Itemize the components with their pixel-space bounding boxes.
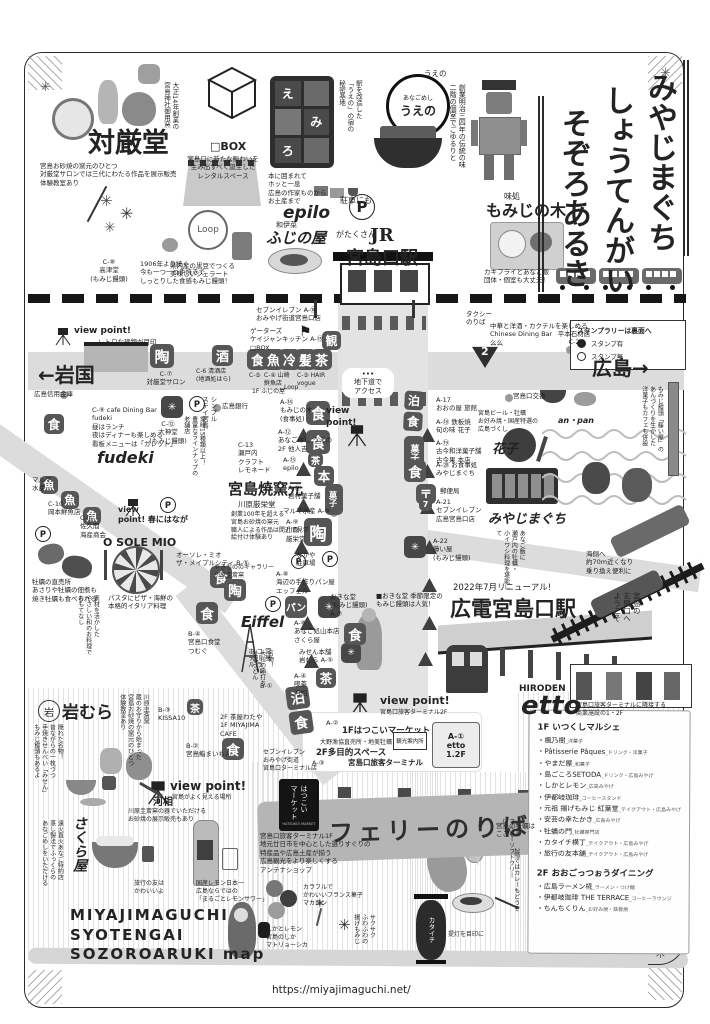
etto-brand: etto (521, 690, 581, 724)
okinado-poi-label: おきな堂 (もみじ饅頭) A-⑦ (330, 593, 368, 618)
sakuraya-cup (142, 846, 154, 862)
box-cube-icon (203, 64, 261, 122)
maple-leaf-2-icon: ✳ (120, 204, 133, 223)
viewpoint-terminal-caption: 宮島口旅客ターミナル2F (380, 709, 447, 717)
robot-body (479, 117, 521, 155)
box-label: □BOX (210, 140, 246, 154)
ryokou-caption: 旅行の友は かわいいよ (134, 880, 164, 896)
okinado-note: ■おきな堂 季節限定の もみじ饅頭は人気！ (376, 592, 443, 609)
etto-shop-item: ・旅行の友本舗_テイクアウト・広島みやげ (537, 849, 681, 861)
osole-caption: パスタにピザ・海鮮の 本格的イタリア料理 (108, 594, 173, 611)
ueno-vert: 創業明治三四年の伝統の味 二階の個室でごゆるりと (448, 84, 466, 204)
kan-icon: 観 (322, 331, 341, 350)
corner-hatch-bl (28, 970, 62, 1004)
koban-dot (505, 394, 513, 402)
hanako-caption: 宮島ビール・牡蠣 お好み焼・国産特選の 広島づくし (478, 410, 538, 433)
etto-shop-item: ・ちんちくりん_お好み焼・鉄板焼 (537, 904, 681, 916)
title-rule-right1 (683, 60, 685, 256)
kawaai-caption: 川原圭斎窯の器でいただける お砂焼の展示販売もあり (128, 808, 206, 824)
viewpoint-retro-tripod-icon (54, 326, 72, 346)
marma-p: P (35, 526, 51, 542)
chinese-bar-label: 中華と洋酒・カクテルを楽しめる Chinese Dining Bar 么么 (490, 322, 588, 347)
etto-shop-item: ・やまだ屋_和菓子 (537, 758, 681, 770)
parking-caption1: 駐車にも (340, 196, 372, 206)
tree-illustration-1 (582, 462, 610, 494)
nakaya-p: P (322, 551, 338, 567)
miyajimaguchi-script: みやじまぐち (488, 512, 566, 529)
marma-a10-label: マルマ水産 A-⑩ (283, 507, 330, 515)
hatsukoi-sign-text: はつこい マーケット (289, 785, 309, 820)
marma-label: マルマ 水産 (32, 476, 52, 493)
loop-logo: Loop (188, 210, 228, 250)
food-icon-a6: 食 (344, 623, 366, 645)
etto-1f-list: ・楓乃樹_洋菓子・Pâtisserie Pâques_ドリンク・洋菓子・やまだ屋… (537, 736, 682, 861)
iwamura-stamp: 岩 (38, 700, 60, 722)
sakuraya-rice (96, 836, 134, 846)
epilo-poi-label: A-⑬ epilo (283, 456, 299, 473)
sake-icon: 酒 (212, 345, 233, 366)
gallery-label: やきもののギャラリー 川原圭斎窯 (214, 564, 274, 580)
lantern-cap-bottom (416, 960, 446, 964)
ueno-logo-sub: あなごめし (403, 93, 433, 102)
site-url: https://miyajimaguchi.net/ (272, 984, 411, 998)
main-title-2: しょうてんがい (597, 85, 636, 295)
iwamura-cup-illustration (102, 776, 116, 790)
hiroden-train-windows (452, 652, 464, 666)
eiffel-poi-label: A-⑧ 海辺の手作りパン屋 エッフェル (276, 570, 335, 595)
momijinoki-dish2 (530, 232, 552, 252)
fudeki-script: fudeki (97, 448, 154, 469)
etto-shop-item: ・牡蠣の門_牡蠣専門店 (537, 826, 681, 838)
etto-shop-item: ・安芸の幸たかき_広島みやげ (537, 815, 681, 827)
cafe-icon-b3: 茶 (187, 699, 203, 715)
gelato-bag-illustration (232, 232, 252, 260)
emiro-tile-ro: ろ (275, 138, 301, 163)
food-icon-b4: 食 (196, 602, 218, 624)
food-icon-a20: 食 (404, 460, 426, 482)
macaron-illustration (266, 880, 283, 897)
hatsukoi-sign-sub: HATSUKOI MARKET (282, 822, 315, 826)
fujinoya-1f-label: 1F ふじの屋 (252, 388, 285, 396)
taigendo-logo: 対厳堂 (88, 126, 169, 161)
loop-caption: 県内産の黒豆でつくる 美味しいジェラート (170, 262, 235, 279)
kataichi-lantern-text: カタイチ (426, 917, 436, 943)
anpan-label: an・pan (558, 416, 594, 426)
etto-directory-panel: 1F いつくしマルシェ ・楓乃樹_洋菓子・Pâtisserie Pâques_ド… (527, 710, 690, 955)
underpass-note: ••• 地下道で アクセス (342, 368, 394, 398)
emiro-tile-mi: み (304, 109, 330, 134)
etto-shop-item: ・カタイチ横丁_テイクアウト・広島みやげ (537, 838, 681, 850)
terminal-gyokyou: 大野漁協直売所・地美牡蠣 (320, 739, 392, 747)
wataya-label: 2F 茶屋わたや 1F MIYAJIMA CAFE (220, 713, 262, 738)
viewpoint-retro-caption: レトロな建物が目印 (98, 338, 157, 346)
crosswalk-north (342, 316, 426, 330)
agemomiji-leaf-icon: ✳ (338, 916, 351, 934)
stamp-no-icon (577, 352, 586, 361)
leaf-icon-iwamura: ✳ (341, 643, 361, 663)
koban-label: 宮島口交番 (513, 392, 546, 400)
viewpoint-terminal-title: view point! (380, 694, 450, 708)
etto-shop-item: ・Pâtisserie Pâques_ドリンク・洋菓子 (537, 747, 681, 759)
knife-illustration (160, 550, 163, 580)
sakuraya-vert: 遠火直火あなご特約店 蒸し製法でふっくらの あなごめしをいただける (40, 820, 63, 898)
emiro-vert: 駅を改造した 「うえの」の宿の 秘密基地 (337, 80, 362, 160)
iwamura-kashi-label: A-⑪ 岩村菓子舗 (288, 484, 321, 501)
emiro-poster: え み ろ (270, 76, 334, 168)
seven-icon-a21: 7 (419, 498, 432, 511)
anago-box-pieces (492, 474, 502, 498)
bread-icon-a8: パン (285, 596, 307, 618)
taigendo-caption: 宮島お砂焼の窯元のひとつ 対厳堂サロンでは三代にわたる作品を展示販売 体験教室あ… (40, 162, 177, 187)
title-rule-left2 (542, 96, 544, 292)
footer-logo: MIYAJIMAGUCHI SYOTENGAI SOZOROARUKI map (70, 906, 265, 965)
gators-label: ゲーターズ ケイジャンキッチン A-⑮ □BOX (250, 327, 323, 352)
route2-number: 2 (481, 345, 489, 358)
okamoto-label: C-10 岡本鮮魚店 (48, 500, 81, 517)
lemon-sour-label (197, 840, 213, 860)
seven-a16: セブンイレブン A-⑯ おみやげ街道宮島口店 (256, 306, 321, 323)
taigendo-pot-illustration (138, 64, 160, 84)
terminal-name: 宮島口旅客ターミナル (348, 758, 423, 768)
fish-pieces (460, 897, 482, 905)
emiro-tile-deco2 (275, 109, 301, 134)
shika-caption: しかとレモン 宮島のしか マトリョーシカ (266, 926, 308, 949)
cafe-icon-a4: 茶 (316, 668, 336, 688)
momijinoki-caption: カキフライとあなご飯 団体・個室も大丈夫！ (484, 268, 549, 285)
tsumugu-label: B-④ 宮島口食堂 つむぐ (188, 630, 221, 655)
osole-logo: O SOLE MIO (103, 536, 176, 550)
sakuraya-script: さくら屋 (70, 816, 88, 878)
chochin-caption: 提灯を目印に (448, 931, 484, 939)
macaron-caption: カラフルで かわいいフランス菓子 マカロン (303, 884, 363, 907)
jizake-label: C-6 清酒店 (地酒処はら) (196, 368, 231, 384)
etto-a1-card: A-① etto 1.2F (432, 722, 480, 768)
etto-shop-item: ・伊都岐珈琲_コーヒースタンド (537, 792, 681, 804)
lemon-sour-caption: 国産レモン日本一 広島ならではの 「まるごとレモンサワー」 (196, 880, 268, 903)
totem-pole-illustration (668, 382, 679, 476)
viewpoint-retro-title: view point! (74, 326, 131, 338)
pottery-icon-c7: 陶 (150, 344, 174, 368)
eiffel-script: Eiffel (241, 613, 284, 633)
seven-a21-label: A-21 セブンイレブン 広島宮島口店 (436, 498, 482, 523)
momijinoki-poi-label: A-⑭ もみじの木 (食事処) (280, 398, 313, 423)
ueno-poi-label: A-⑫ あなごめし うえの 2F 他人吉 (278, 428, 332, 453)
robot-arm-left (471, 120, 478, 146)
robot-head (486, 92, 512, 114)
ueno-logo-main: うえの (400, 102, 436, 119)
viewpoint-miyajima-caption: 宮島がよく見える場所 (172, 794, 232, 802)
maple-leaf-1-icon: ✳ (100, 192, 113, 210)
kataichi-lantern: カタイチ (416, 900, 446, 960)
oonoya-lodging-dining-icon: 泊食 (403, 391, 424, 432)
shinkin-label: 広島信用金庫 (34, 390, 73, 398)
nakaya-label: なかや 駐車場 (296, 551, 316, 568)
fujiiya-label: A-22 藤い屋 (もみじ饅頭) (433, 537, 471, 562)
taigendo-vert: 大正14年創業の 宮島神社御用窯 (162, 82, 179, 160)
shokudo-label: A-⑳ お食事処 みやじまぐち (436, 461, 477, 478)
tourist-info-box: 観光案内所 (393, 732, 427, 750)
iwamura-plate-illustration (80, 798, 106, 806)
miyajimaguchi-map-poster: ✳ ✳ ✳ Loop ✳ ✳ ✳ え み ろ (0, 0, 710, 1024)
jr-station-windows (348, 270, 366, 292)
main-title-3: そぞろあるき (554, 108, 593, 288)
pottery-icon-b6: 陶 (224, 579, 246, 601)
viewpoint-miyajima-title: view point! (170, 779, 246, 795)
coral-b1: B-① (260, 682, 273, 690)
hiroden-renewal: 2022年7月リニューアル! (453, 583, 551, 594)
viewpoint-plaza: view point! (326, 406, 357, 429)
taigendo-jar-illustration (122, 92, 156, 126)
jr-station-label: JR 宮島口駅 (342, 224, 422, 271)
robot-sign (482, 80, 516, 90)
cafe-icon-epilo: 茶 (308, 452, 323, 467)
curry-vert: 2階ではカレーもどうぞ (512, 848, 520, 930)
emiro-tile-deco3 (304, 138, 330, 163)
terminal-a2: A-② (326, 719, 338, 727)
corner-hatch-br (648, 966, 682, 1000)
eiffel-p: P (265, 596, 281, 612)
title-rule-left1 (538, 96, 540, 292)
kamamoto-sub: 川原厳栄堂 (238, 500, 276, 510)
takatsudo-label: C-⑧ 高津堂 (もみじ饅頭) (82, 258, 136, 283)
pizza-illustration (112, 546, 160, 594)
gelato-tomato-illustration (162, 238, 178, 252)
hiroshima: 広島→ (592, 355, 649, 381)
anpan-bread-illustration (574, 392, 596, 406)
fujinoya-food (280, 254, 308, 266)
lemon-sour-glass (222, 848, 238, 870)
lemonade-label: C-13 瀬戸内 クラフト レモネード (238, 441, 271, 475)
robot-leg-right (504, 154, 514, 180)
tsumugu-vert: 素材を活かした やさしい和のお料理で おもてなし (76, 595, 99, 665)
hiroden-platform-pillars (500, 648, 505, 676)
postoffice-label: 郵便局 (440, 487, 460, 495)
genkan-vert: 宮島の 玄関口へ ようこそ (612, 592, 641, 650)
food-icon-fudeki: 食 (44, 414, 64, 434)
maimon-label: B-② 宮島鮨まいもん (186, 742, 232, 759)
hatsukoi-market-sign: はつこい マーケット HATSUKOI MARKET (279, 779, 319, 831)
iwamura-poi-label: みせん本舗 岩むら A-⑤ (299, 648, 333, 665)
keisai-vert: 川原圭斎窯 蔵のお守りから始まった 宮島お砂焼の窯元のひとつ 体験教室あり (118, 694, 149, 770)
kissa-kawaai-label: A-④ 喫茶 河相 (294, 672, 307, 697)
book-icon-a13: 本 (314, 466, 334, 486)
etto-shop-item: ・楓乃樹_洋菓子 (537, 736, 681, 748)
seven-terminal-label: セブンイレブン おみやげ街道 宮島口ターミナル店 (263, 749, 317, 772)
simplestay-vert: シンプル ステイ宮島 (200, 396, 217, 448)
etto-2f-title: 2F おおごっつぉうダイニング (537, 866, 681, 879)
hiroden-station-logo: 広電宮島口駅 (450, 595, 576, 622)
c5-label: C-⑤ (249, 372, 261, 380)
momijinoki-logo: もみじの木 (486, 201, 566, 222)
emiro-tile-e: え (275, 81, 301, 106)
title-rule-right2 (687, 60, 689, 256)
taigendo-salon-label: C-⑦ 対厳堂サロン (140, 370, 192, 387)
emiro-caption: 本に囲まれて ホッと一息 広島の作家ものから お土産まで (268, 172, 327, 206)
coral-vert: 宮島 コーラル ホテル (246, 648, 271, 700)
oono-label: A-17 おおの屋 旅館 (436, 396, 477, 413)
lantern-cap-top (414, 894, 448, 899)
momijinoki-dish1 (498, 230, 526, 258)
etto-shop-item: ・伊都岐珈琲 THE TERRACE_コーヒーラウンジ (537, 893, 681, 905)
sakuraya-poi-label: A-⑥ あなご処山本店 さくら屋 (294, 619, 340, 644)
taigendo-vase-illustration (98, 80, 118, 124)
etto-shop-item: ・島ごころSETODA_ドリンク・広島みやげ (537, 770, 681, 782)
robot-arm-right (520, 120, 527, 146)
hanako-script: 花子 (492, 442, 518, 459)
fujinoya-logo: ふじの屋 (266, 229, 326, 249)
plaza-lamp-right (412, 300, 415, 318)
kawahara-poi-label: A-⑨ 川原 厳栄堂 (286, 518, 306, 543)
etto-shop-item: ・しかとレモン_広島みやげ (537, 781, 681, 793)
box-caption: 宮島口に新たな賑わいを 生み出すべく誕生した レンタルスペース (180, 155, 266, 180)
fujiiya-vert: もみじ饅頭「藤い屋」の あんづくりを生かした 洋菓子もカフェも併設 (640, 386, 663, 482)
maple-leaf-3-icon: ✳ (104, 220, 116, 236)
iwamura-logo: 岩むら (62, 702, 113, 724)
hanako-label: A-⑱ 鉄板焼 旬の味 花子 (436, 418, 471, 435)
c3-label: C-③ HAIR vogue (297, 372, 325, 388)
maple-deco-tl-icon: ✳ (40, 80, 51, 95)
etto-2f-list: ・広島ラーメン椛_ラーメン・つけ麺・伊都岐珈琲 THE TERRACE_コーヒー… (537, 881, 681, 916)
leaf-icon-a22: ✳ (404, 536, 426, 558)
etto-shop-item: ・広島ラーメン椛_ラーメン・つけ麺 (537, 881, 681, 893)
viewpoint-hana: view point! 春にはなが (118, 505, 188, 526)
iwakuni: ←岩国 (38, 362, 95, 388)
fork-illustration (104, 550, 107, 580)
taxi-label: タクシー のりば (466, 310, 492, 327)
umigawa-caption: 海側へ 約70m近くなり 乗り換え便利に (586, 550, 633, 575)
robot-leg-left (484, 154, 494, 180)
main-title-1: みやじまぐち (640, 72, 679, 252)
etto-shop-item: ・元祖 揚げもみじ 紅葉堂_テイクアウト・広島みやげ (537, 804, 681, 816)
emiro-tile-deco1 (304, 81, 330, 106)
bank-label: 広島銀行 (222, 402, 248, 410)
ueno-script: うえの (424, 69, 447, 79)
kissa10-label: B-③ KISSA10 (158, 706, 185, 723)
iwamura-vert: 隠れた名物！ 昔ながらの一枚づつ 手焼きせんべい「みせん」 もみじ饅頭もあるよ (32, 724, 63, 812)
agemomiji-vert: サクサク ふわふわの 揚げもみじ (352, 914, 375, 966)
etto-caption: 宮島口旅客ターミナルに隣接する 商業施設の1・2F (576, 702, 666, 718)
hatsukoi-caption: 宮島口旅客ターミナル1F 地元廿日市を中心とした選りすぐりの 特産品や広島土産が… (260, 832, 371, 874)
